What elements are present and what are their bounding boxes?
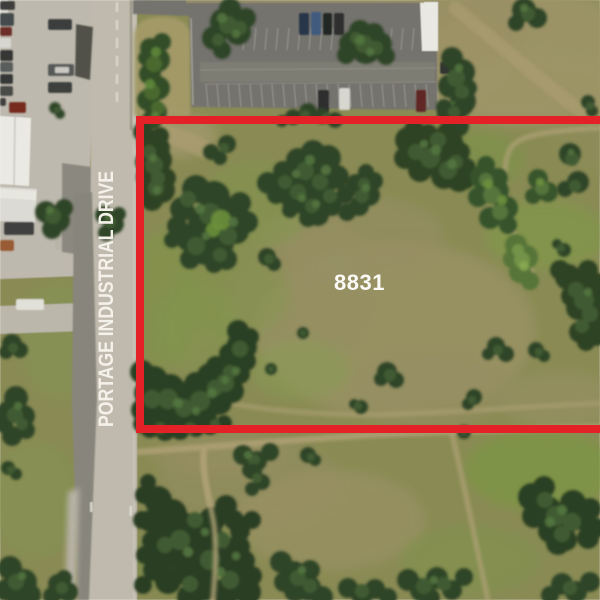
svg-text:8831: 8831 bbox=[334, 270, 385, 295]
svg-text:PORTAGE INDUSTRIAL DRIVE: PORTAGE INDUSTRIAL DRIVE bbox=[95, 171, 118, 427]
